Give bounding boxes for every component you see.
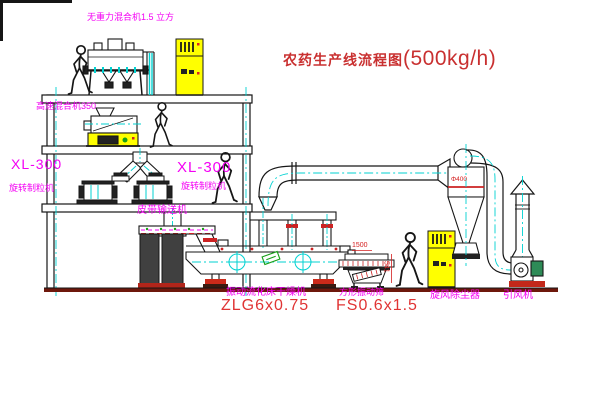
label-sieve-model: FS0.6x1.5: [336, 298, 418, 315]
label-granulator-right-name: 旋转制粒机: [181, 182, 226, 191]
granulator-left: [77, 173, 129, 204]
label-granulator-right-model: XL-300: [177, 160, 231, 176]
induced-draft-fan: [509, 257, 545, 287]
label-granulator-left-model: XL-300: [11, 157, 62, 172]
control-cabinet-2: [428, 231, 455, 287]
title-capacity: (500kg/h): [403, 47, 496, 70]
frame-corner: [0, 0, 72, 41]
control-cabinet-1: [176, 39, 203, 95]
diagram-title: 农药生产线流程图(500kg/h): [283, 47, 496, 71]
dim-sieve-width: 1500: [352, 242, 368, 249]
label-belt-conveyor: 皮带输送机: [137, 206, 187, 217]
high-speed-mixer: [84, 108, 142, 146]
dim-sieve-height: 541: [382, 261, 389, 273]
label-dryer-model: ZLG6x0.75: [221, 298, 309, 315]
label-cyclone: 旋风除尘器: [430, 291, 480, 302]
worker-second-floor: [150, 103, 172, 147]
pesticide-line-flow-diagram: 无重力混合机1.5 立方 农药生产线流程图(500kg/h) 高速混合机350 …: [0, 0, 600, 403]
granulator-right: [132, 173, 172, 204]
exhaust-duct: [259, 159, 462, 210]
title-text: 农药生产线流程图: [283, 52, 403, 68]
gravity-mixer: [83, 39, 154, 95]
label-gravity-mixer: 无重力混合机1.5 立方: [87, 13, 174, 22]
label-high-speed-mixer: 高速混合机350: [36, 102, 96, 111]
label-granulator-left-name: 旋转制粒机: [9, 184, 54, 193]
label-fan: 引风机: [503, 291, 533, 302]
tag-cyclone: Φ400: [451, 177, 467, 184]
worker-ground: [397, 233, 423, 286]
